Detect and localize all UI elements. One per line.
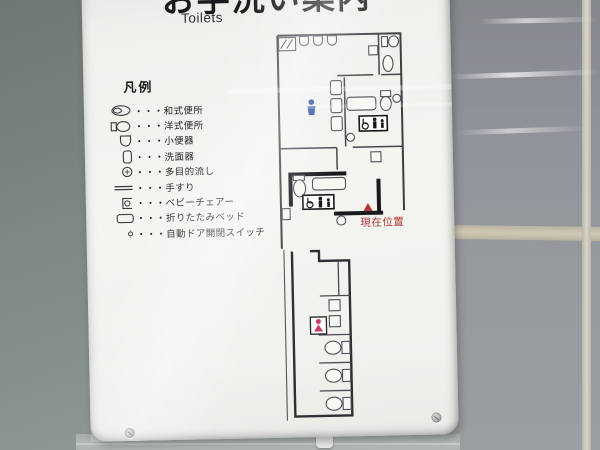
current-location-marker: 現在位置 [360,202,405,229]
floor-plan: 現在位置 [81,0,459,442]
tile-grout-vertical [582,0,591,450]
light-reflection [458,126,588,136]
accessible-sign-middle [303,195,334,210]
accessible-sign-upper [359,116,387,132]
toilet-guide-sign-panel: お手洗い案内 Toilets 凡例 ・・・和式便所 ・・・洋式便所 ・・・小便器 [81,0,459,442]
tile-grout-horizontal [448,225,600,241]
female-figure-icon [310,317,326,334]
outer-line [284,250,288,421]
light-reflection [478,17,598,24]
current-location-label: 現在位置 [360,215,404,229]
wall-tile-right [448,0,600,450]
light-reflection [450,69,600,79]
